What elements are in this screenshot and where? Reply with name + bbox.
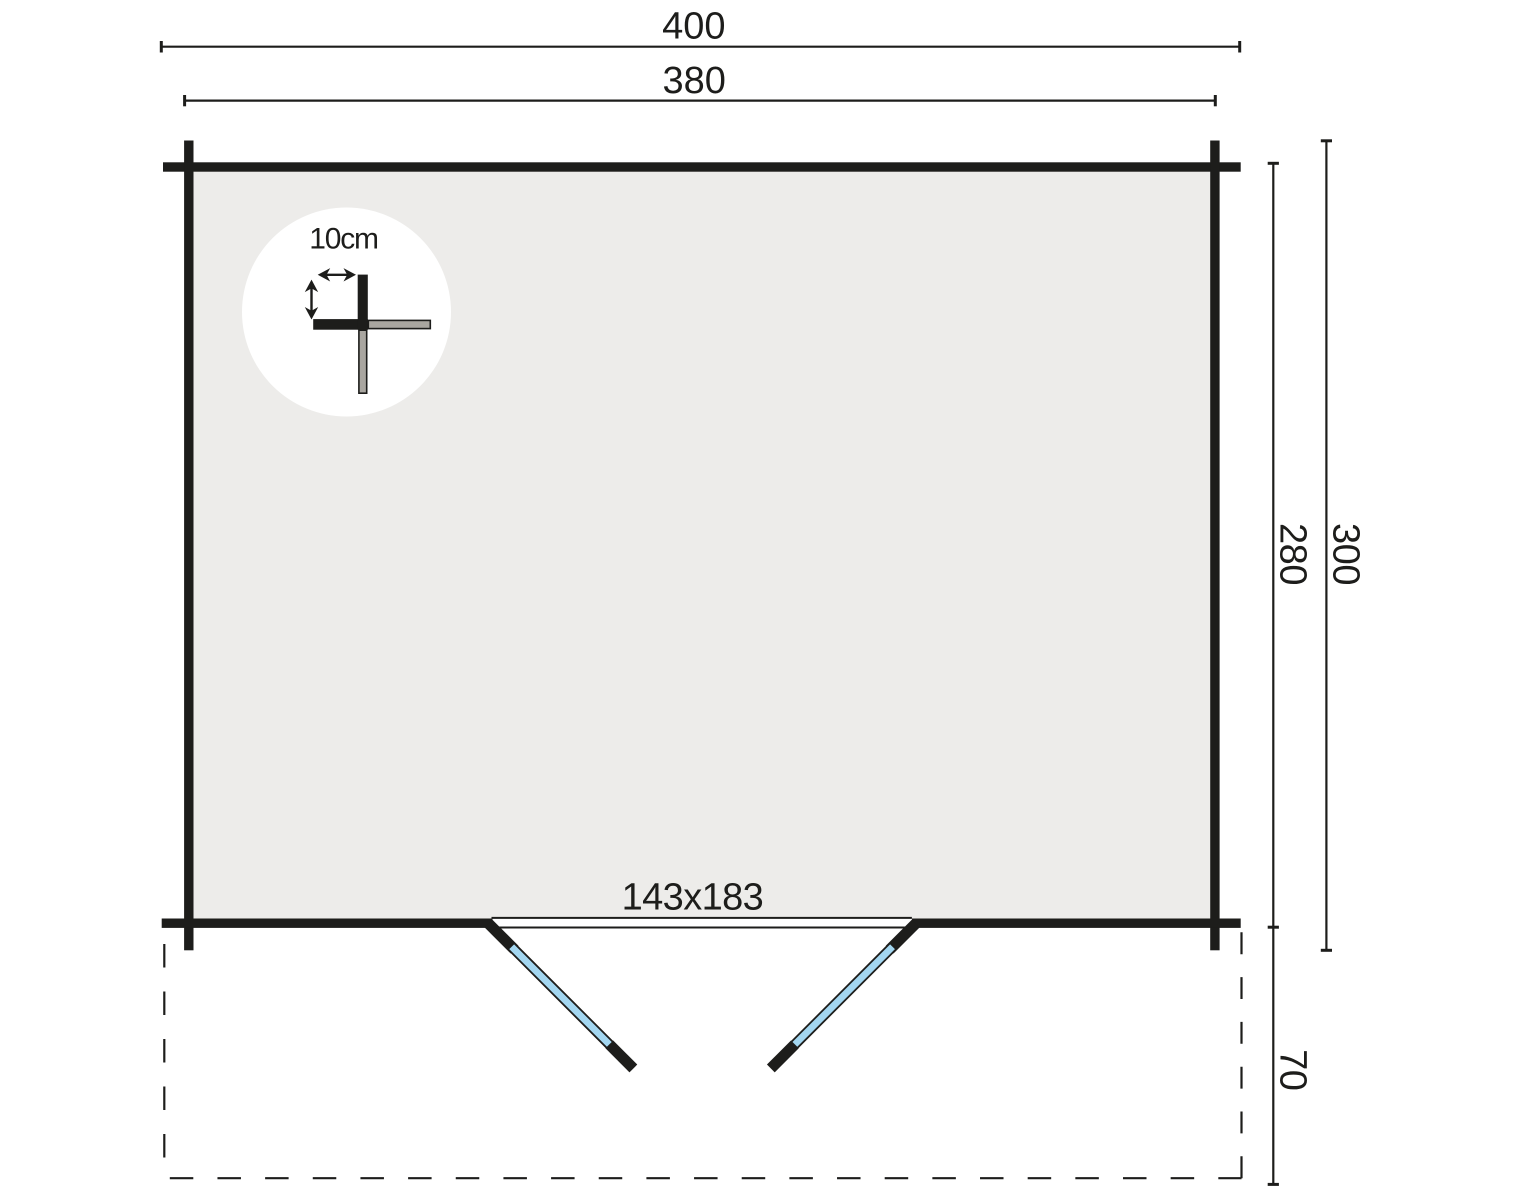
svg-text:70: 70 — [1271, 1049, 1313, 1090]
svg-text:300: 300 — [1324, 523, 1366, 585]
svg-text:10cm: 10cm — [309, 222, 378, 255]
svg-text:380: 380 — [662, 60, 725, 102]
svg-text:280: 280 — [1271, 523, 1313, 585]
svg-text:143x183: 143x183 — [622, 877, 764, 919]
svg-text:400: 400 — [662, 6, 725, 48]
